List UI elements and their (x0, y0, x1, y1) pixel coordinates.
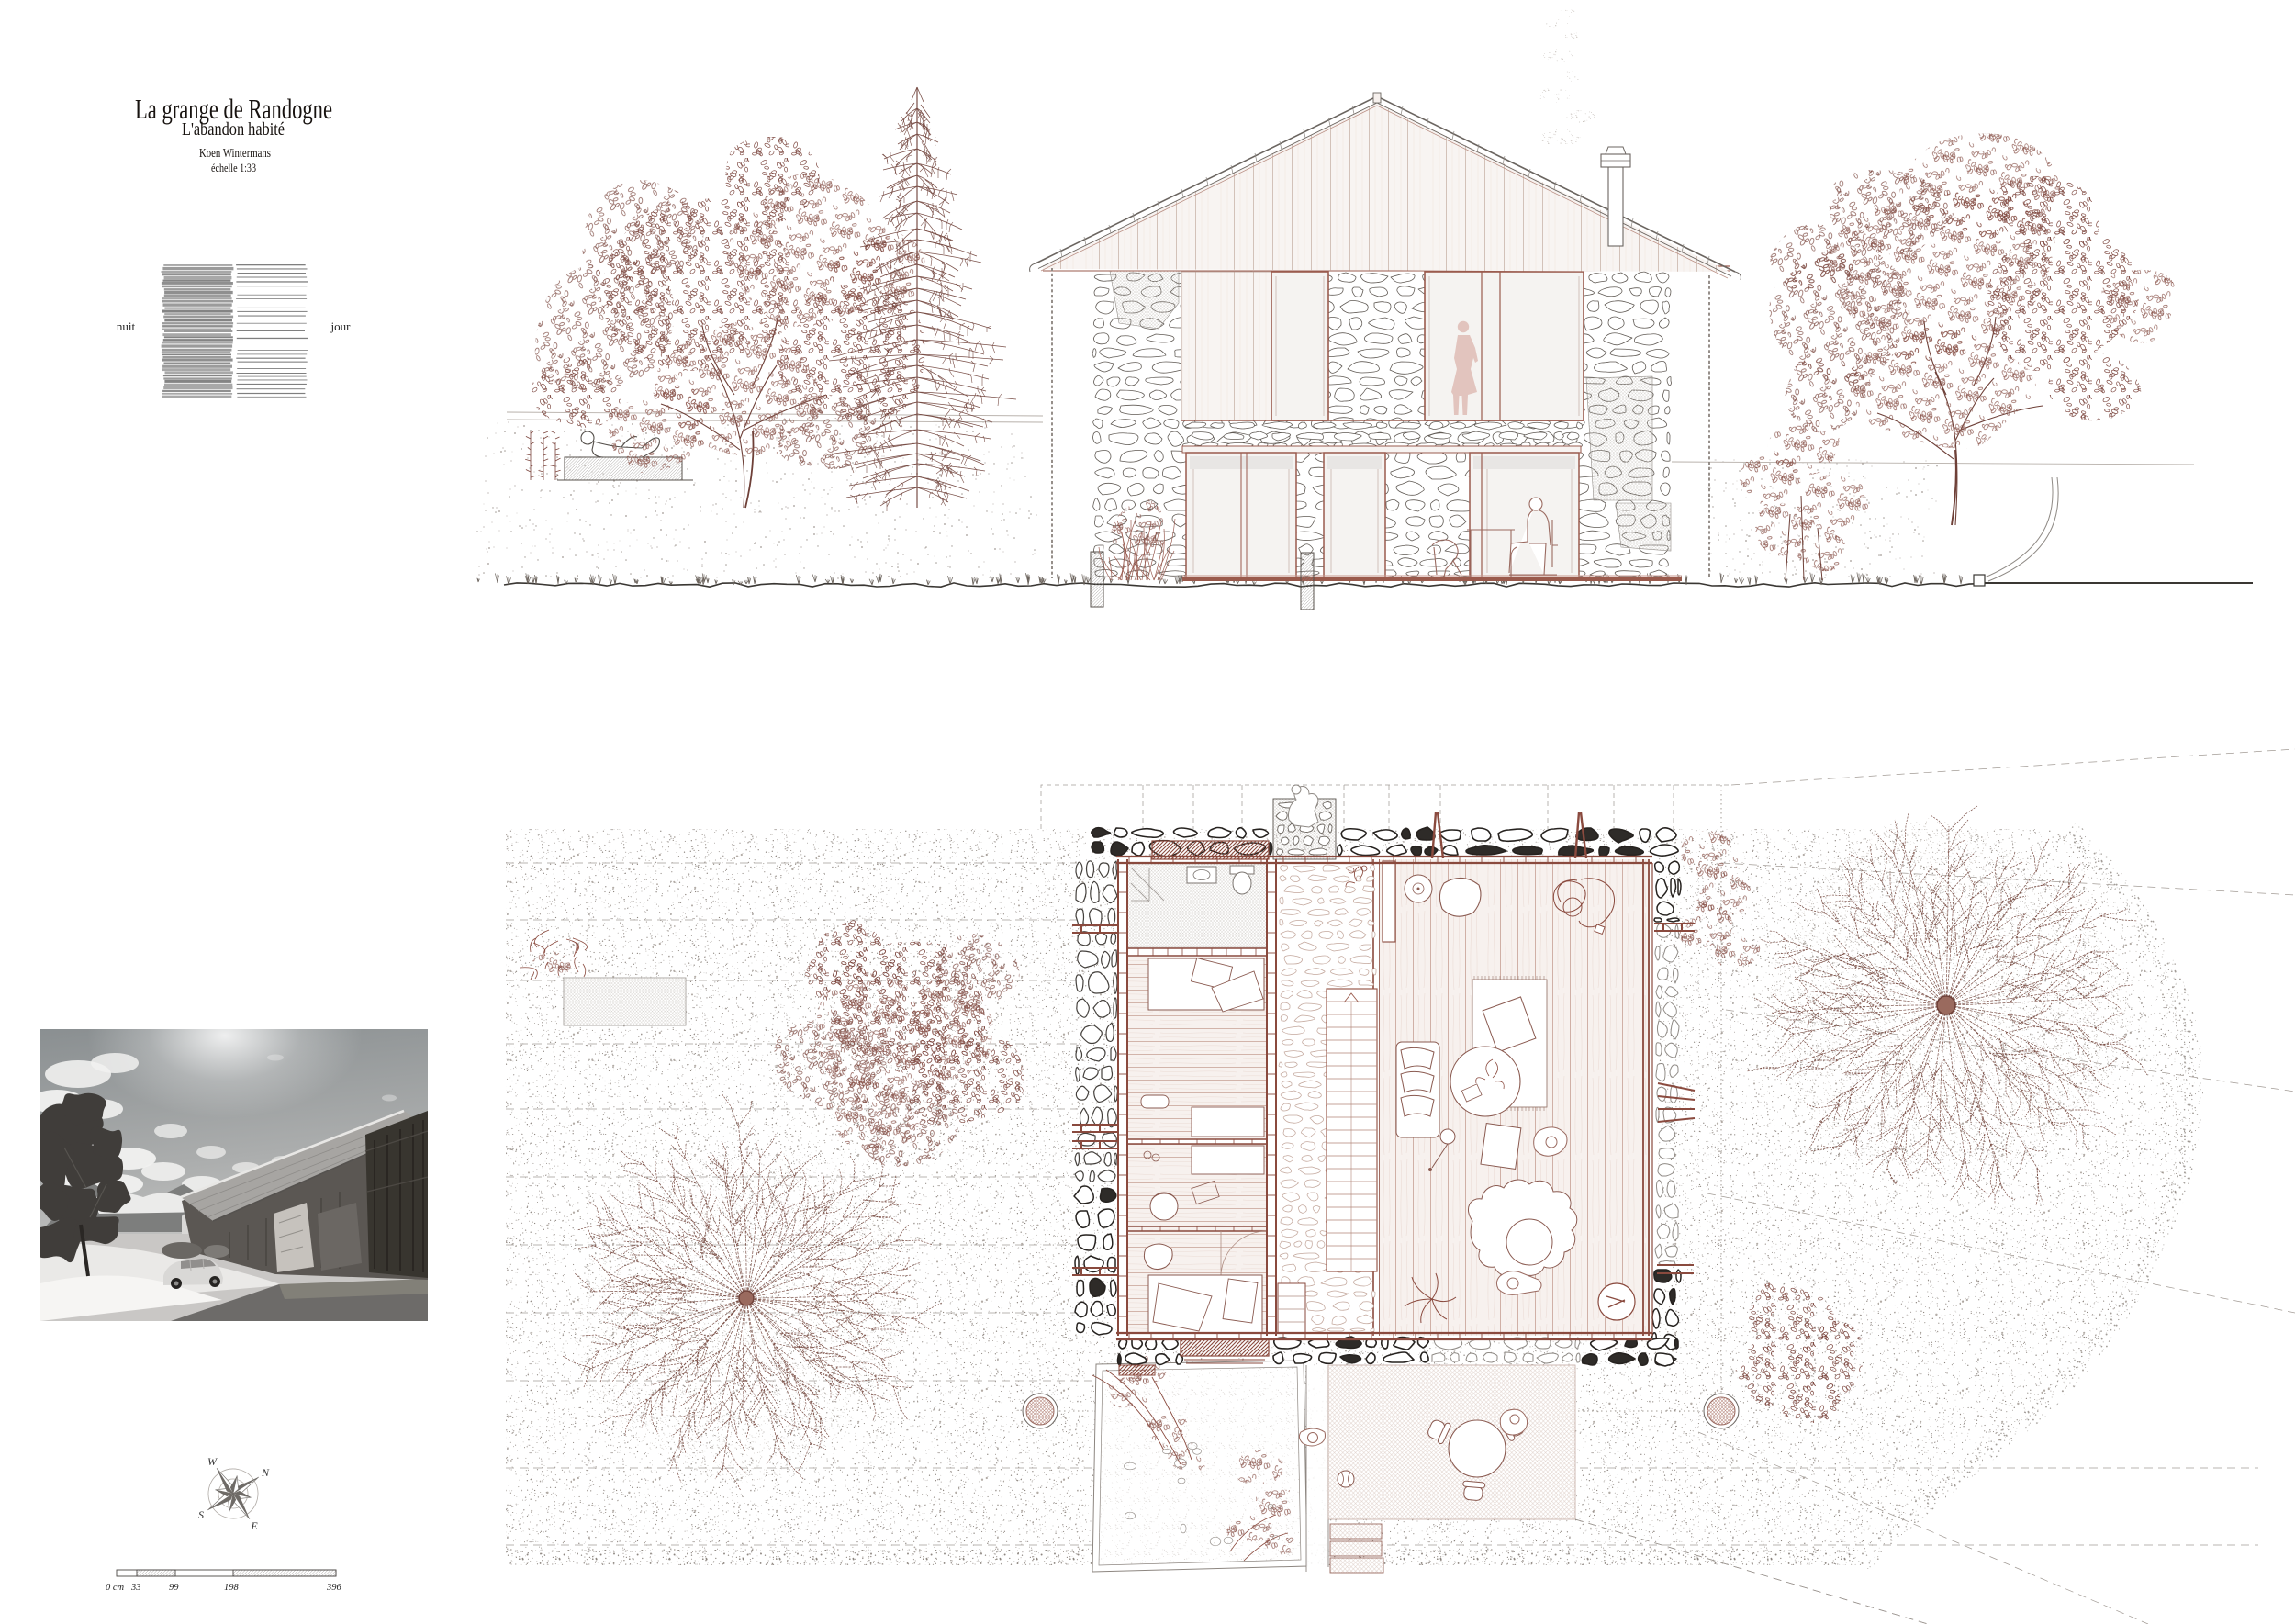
svg-text:33: 33 (130, 1583, 141, 1593)
svg-text:L'abandon habité: L'abandon habité (182, 119, 285, 140)
svg-text:396: 396 (326, 1583, 342, 1593)
svg-text:W: W (207, 1455, 218, 1468)
svg-text:0 cm: 0 cm (106, 1583, 125, 1593)
svg-text:S: S (198, 1508, 204, 1521)
svg-text:Koen Wintermans: Koen Wintermans (199, 146, 271, 160)
svg-text:99: 99 (169, 1583, 179, 1593)
svg-text:nuit: nuit (117, 319, 136, 333)
svg-text:échelle 1:33: échelle 1:33 (211, 161, 256, 174)
svg-text:N: N (261, 1466, 270, 1479)
svg-text:198: 198 (224, 1583, 240, 1593)
svg-text:jour: jour (330, 319, 352, 333)
svg-text:E: E (250, 1519, 258, 1532)
